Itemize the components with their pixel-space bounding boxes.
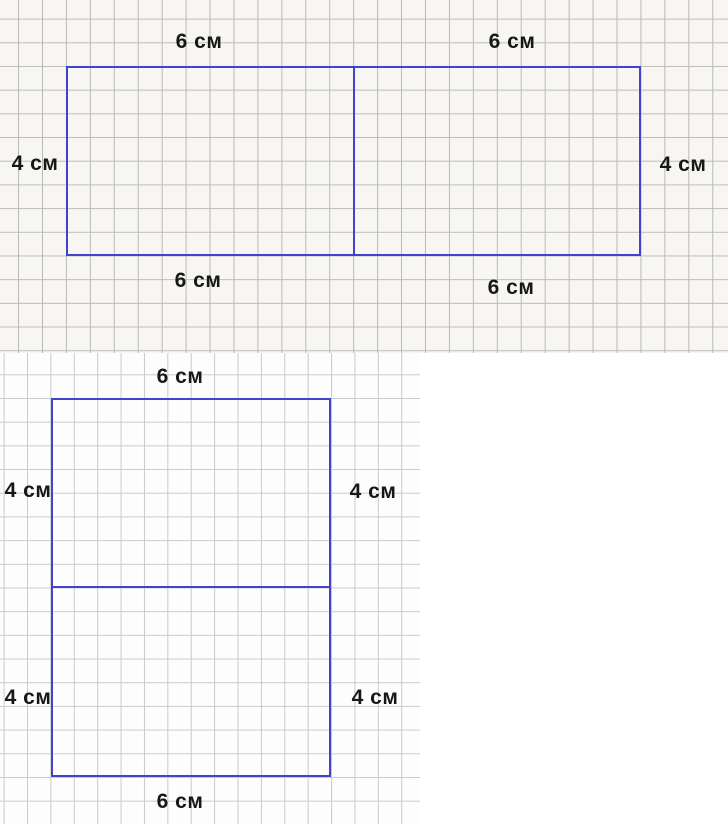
label-4cm-tall-left-lower: 4 см [5, 686, 52, 710]
tall-rectangle-divider-line [51, 586, 331, 588]
label-6cm-tall-top: 6 см [157, 365, 204, 389]
label-6cm-wide-bottom-right: 6 см [488, 276, 535, 300]
label-4cm-wide-left: 4 см [12, 152, 59, 176]
grid-paper-bottom: 6 см 4 см 4 см 4 см 4 см 6 см [0, 353, 420, 824]
label-4cm-wide-right: 4 см [660, 153, 707, 177]
label-6cm-wide-top-right: 6 см [489, 30, 536, 54]
label-6cm-wide-bottom-left: 6 см [175, 269, 222, 293]
label-4cm-tall-right-lower: 4 см [352, 686, 399, 710]
label-4cm-tall-right-upper: 4 см [350, 480, 397, 504]
label-6cm-wide-top-left: 6 см [176, 30, 223, 54]
wide-rectangle-divider-line [353, 66, 355, 256]
label-4cm-tall-left-upper: 4 см [5, 479, 52, 503]
grid-paper-top: 6 см 6 см 4 см 4 см 6 см 6 см [0, 0, 728, 353]
worksheet: 6 см 6 см 4 см 4 см 6 см 6 см 6 см 4 см … [0, 0, 728, 824]
label-6cm-tall-bottom: 6 см [157, 790, 204, 814]
